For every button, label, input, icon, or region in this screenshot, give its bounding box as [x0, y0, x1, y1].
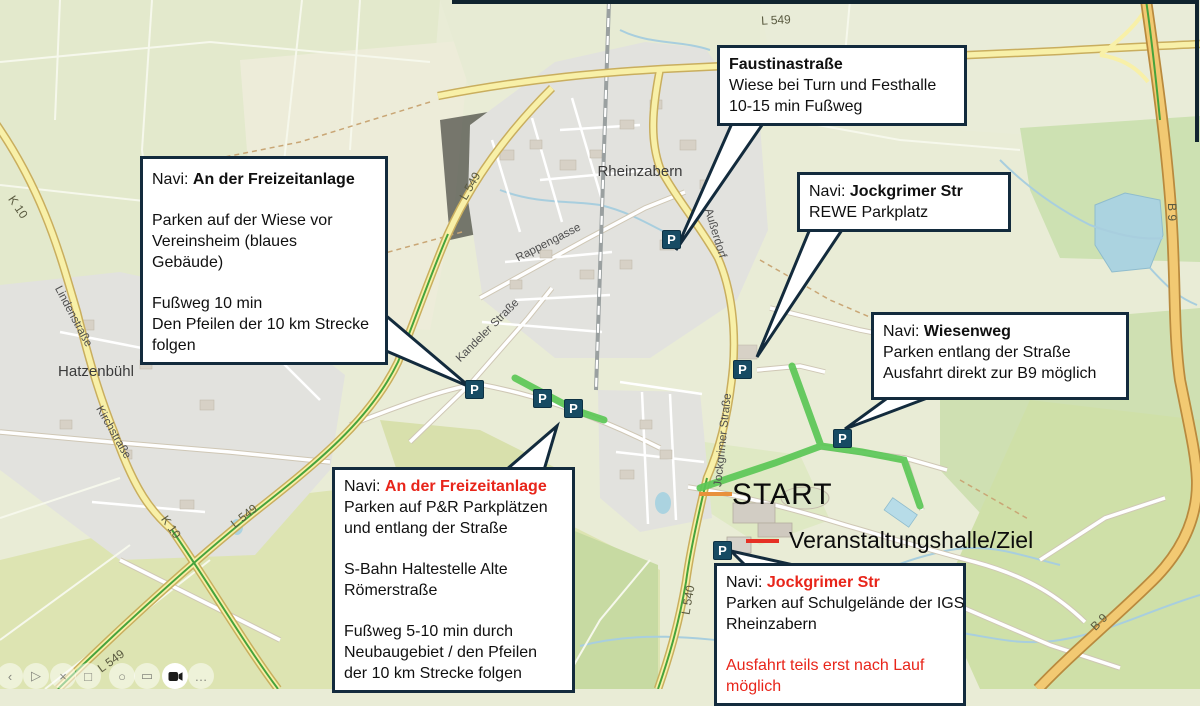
rewe-building: [735, 345, 757, 359]
zoom-icon[interactable]: ○: [109, 663, 135, 689]
callout-title: Navi: An der Freizeitanlage: [344, 476, 563, 497]
start-label: START: [732, 478, 833, 512]
start-dash: [699, 492, 732, 496]
callout-freizeitanlage-pr: Navi: An der Freizeitanlage Parken auf P…: [332, 467, 575, 693]
parking-letter: P: [738, 362, 747, 377]
parking-letter: P: [667, 232, 676, 247]
callout-title: Navi: Wiesenweg: [883, 321, 1117, 342]
videocam-glyph: [168, 671, 183, 682]
slide-map-annotated: Rheinzabern Hatzenbühl Rappengasse Außer…: [0, 0, 1200, 689]
parking-marker: P: [564, 399, 583, 418]
parking-marker: P: [533, 389, 552, 408]
parking-letter: P: [538, 391, 547, 406]
parking-letter: P: [838, 431, 847, 446]
parking-marker: P: [713, 541, 732, 560]
callout-title: Faustinastraße: [729, 54, 955, 75]
parking-marker: P: [465, 380, 484, 399]
finish-label: Veranstaltungshalle/Ziel: [789, 527, 1033, 554]
subtitles-icon[interactable]: ▭: [134, 663, 160, 689]
parking-letter: P: [470, 382, 479, 397]
finish-dash: [746, 539, 779, 543]
map-label-town: Hatzenbühl: [58, 363, 134, 380]
more-icon[interactable]: …: [188, 663, 214, 689]
map-label-ref: L 549: [761, 12, 792, 28]
parking-marker: P: [662, 230, 681, 249]
parking-letter: P: [569, 401, 578, 416]
play-icon[interactable]: ▷: [23, 663, 49, 689]
pond: [655, 492, 671, 514]
slides-icon[interactable]: □: [75, 663, 101, 689]
callout-faustinastrasse: Faustinastraße Wiese bei Turn und Festha…: [717, 45, 967, 126]
parking-letter: P: [718, 543, 727, 558]
lake: [1095, 193, 1163, 272]
callout-freizeitanlage-wiese: Navi: An der Freizeitanlage Parken auf d…: [140, 156, 388, 365]
callout-title: Navi: Jockgrimer Str: [726, 572, 954, 593]
map-label-ref: B 9: [1165, 203, 1179, 221]
callout-igs: Navi: Jockgrimer Str Parken auf Schulgel…: [714, 563, 966, 706]
camera-icon[interactable]: [162, 663, 188, 689]
parking-marker: P: [733, 360, 752, 379]
parking-marker: P: [833, 429, 852, 448]
callout-wiesenweg: Navi: Wiesenweg Parken entlang der Straß…: [871, 312, 1129, 400]
map-label-town: Rheinzabern: [597, 163, 682, 180]
callout-title: Navi: An der Freizeitanlage: [152, 169, 376, 190]
callout-title: Navi: Jockgrimer Str: [809, 181, 999, 202]
callout-rewe: Navi: Jockgrimer Str REWE Parkplatz: [797, 172, 1011, 232]
close-icon[interactable]: ×: [50, 663, 76, 689]
